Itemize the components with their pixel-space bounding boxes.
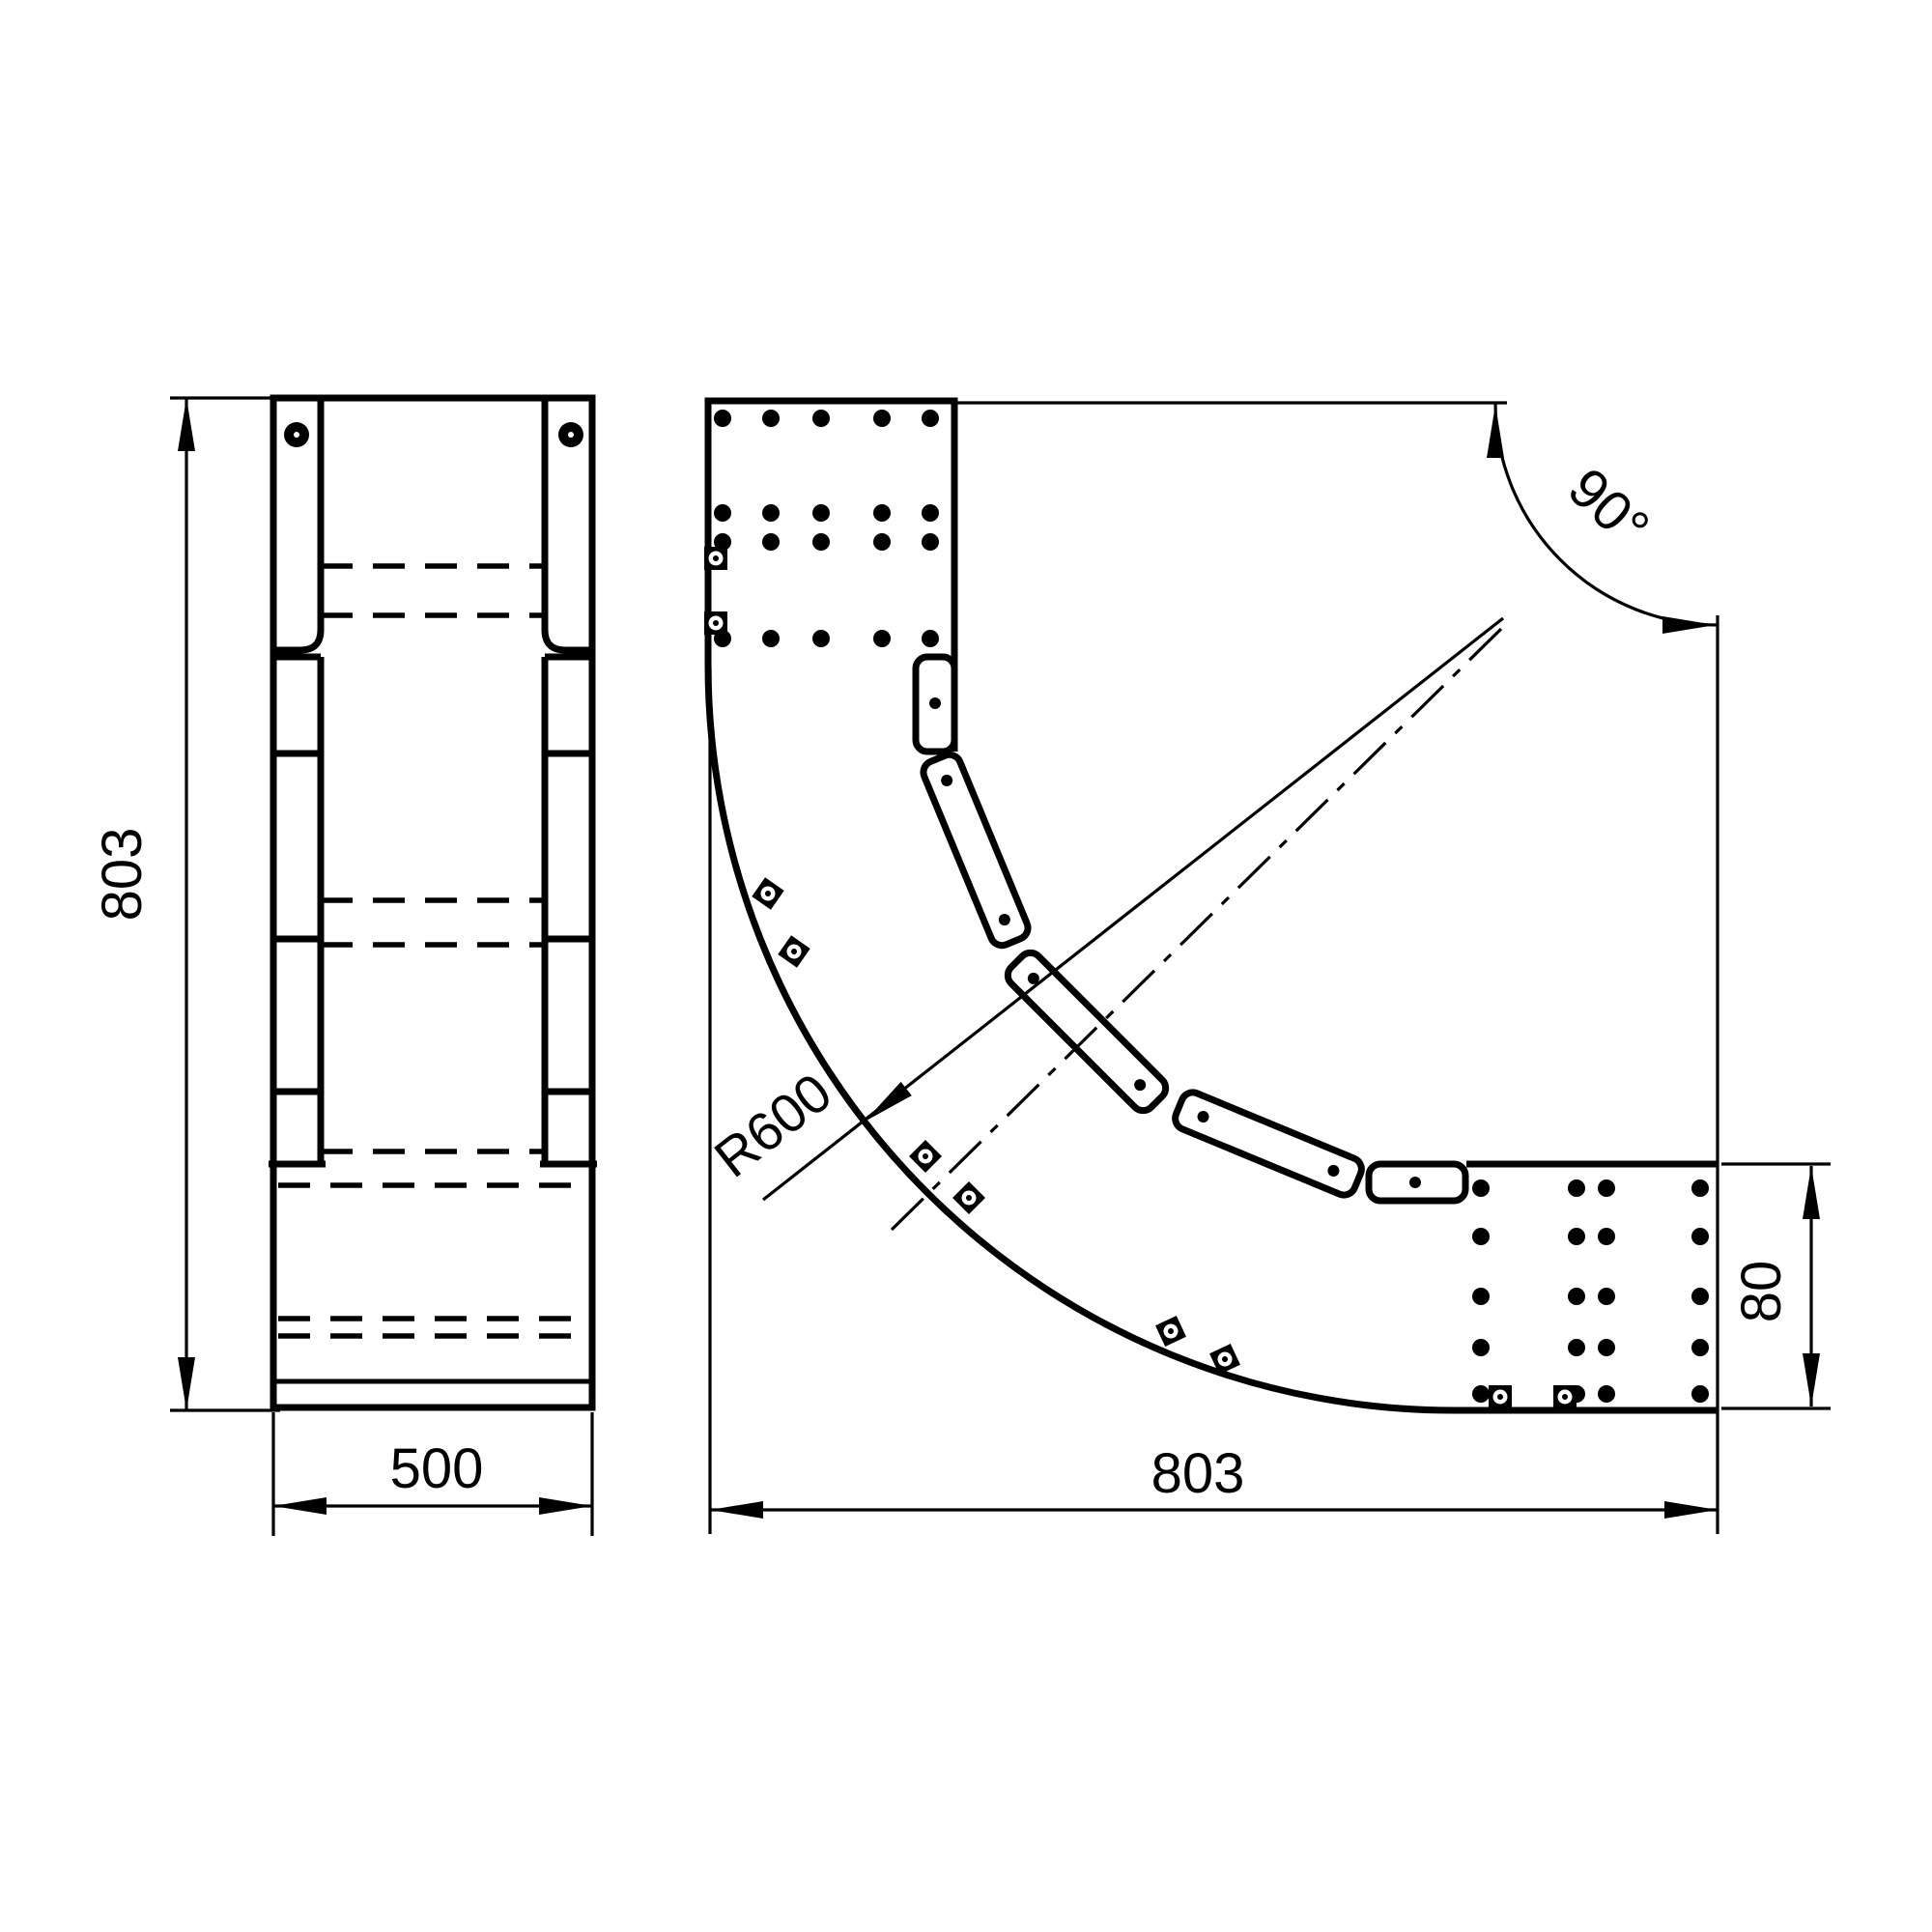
dim-bend-radius-label: R600: [703, 1062, 842, 1189]
dim-side-height-label: 803: [91, 828, 154, 922]
arrowhead: [178, 1357, 195, 1410]
arrowhead: [539, 1497, 592, 1515]
perforation-row: [1472, 1228, 1709, 1245]
bend-drawing: 803 500: [0, 0, 1932, 1932]
mounting-hole-center: [568, 432, 574, 438]
straight-end-right: [1454, 1164, 1718, 1410]
arrowhead: [273, 1497, 327, 1515]
clamp-symbol: [752, 877, 783, 909]
arrowhead: [865, 1082, 912, 1122]
joint-rivet: [929, 697, 941, 709]
arrowhead: [1487, 405, 1504, 458]
clamp-symbol: [1489, 1385, 1512, 1408]
joint-rivet: [1409, 1177, 1421, 1188]
dim-side-height: 803: [91, 398, 280, 1410]
arrowhead: [1803, 1166, 1820, 1219]
dim-end-height: 80: [1721, 1164, 1831, 1408]
clamp-symbol: [704, 547, 727, 570]
arrowhead: [1662, 616, 1716, 634]
dim-end-height-label: 80: [1730, 1261, 1793, 1323]
clamp-symbol: [909, 1140, 942, 1173]
perforation-row: [714, 533, 939, 551]
perforation-row: [1472, 1288, 1709, 1305]
arrowhead: [178, 398, 195, 451]
plan-view: R600 90° 803 80: [703, 401, 1831, 1534]
clamp-symbol: [1155, 1316, 1186, 1347]
perforation-holes-top: [714, 410, 939, 647]
dim-side-width: 500: [273, 1412, 592, 1536]
arrowhead: [1803, 1353, 1820, 1406]
clamp-symbol: [778, 935, 810, 967]
arrowhead: [1664, 1501, 1718, 1519]
clamp-symbols: [704, 547, 1577, 1408]
perforation-row: [1472, 1179, 1709, 1197]
mounting-hole-center: [294, 432, 299, 438]
dim-bend-radius: R600: [703, 618, 1505, 1230]
perforation-row: [714, 504, 939, 522]
dim-bend-angle-label: 90°: [1556, 456, 1661, 559]
link-plate: [920, 752, 1031, 950]
perforation-row: [714, 630, 939, 647]
perforation-row: [714, 410, 939, 427]
clamp-symbol: [1553, 1385, 1577, 1408]
dim-bend-angle: 90°: [954, 403, 1718, 1534]
dim-plan-width-label: 803: [1151, 1442, 1245, 1505]
perforation-holes-right: [1472, 1179, 1709, 1403]
drawing-sheet: 803 500: [0, 0, 1932, 1932]
link-chain: [916, 657, 1465, 1201]
perforation-row: [1472, 1339, 1709, 1356]
side-view: 803 500: [91, 398, 597, 1536]
arrowhead: [710, 1501, 763, 1519]
link-plate: [1172, 1089, 1365, 1198]
link-plate: [1003, 948, 1170, 1115]
dim-side-width-label: 500: [390, 1437, 484, 1500]
clamp-symbol: [952, 1181, 985, 1214]
clamp-symbol: [704, 611, 727, 635]
